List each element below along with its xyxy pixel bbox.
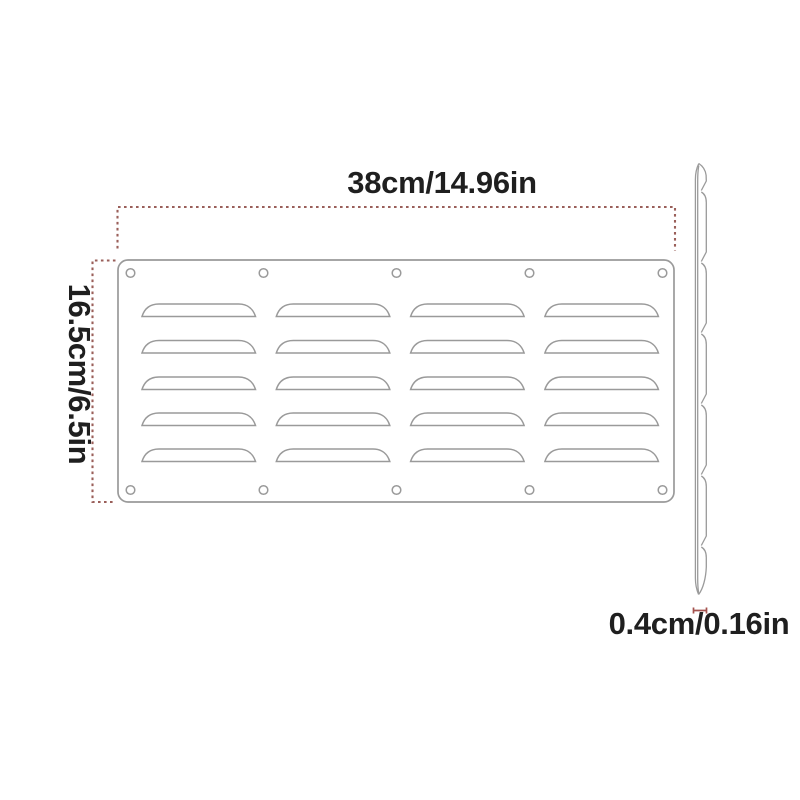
vent-diagram-svg — [0, 0, 800, 800]
screw-hole — [392, 486, 401, 495]
louver-slot — [411, 449, 524, 462]
louver-slot — [276, 377, 390, 390]
louver-slot — [142, 413, 256, 426]
side-profile-louver-shingles — [699, 164, 707, 595]
screw-hole — [259, 269, 268, 278]
height-dimension-label: 16.5cm/6.5in — [61, 284, 97, 465]
louver-slot — [142, 341, 256, 354]
louver-slot — [142, 449, 256, 462]
louver-slot — [276, 413, 390, 426]
product-dimension-diagram: 38cm/14.96in 16.5cm/6.5in 0.4cm/0.16in — [0, 0, 800, 800]
width-dimension-bracket — [118, 207, 676, 251]
vent-front-view — [118, 260, 674, 502]
screw-hole — [525, 269, 534, 278]
screw-hole — [658, 486, 667, 495]
screw-hole — [126, 269, 135, 278]
louver-slot — [545, 304, 659, 317]
louver-slot — [411, 341, 524, 354]
louver-slot — [276, 449, 390, 462]
screw-hole — [392, 269, 401, 278]
louver-slot — [142, 377, 256, 390]
vent-side-view — [695, 164, 706, 595]
screw-hole — [658, 269, 667, 278]
louver-slot — [545, 377, 659, 390]
louver-slot — [545, 341, 659, 354]
thickness-dimension-label: 0.4cm/0.16in — [609, 606, 790, 642]
louver-slot — [142, 304, 256, 317]
screw-hole — [525, 486, 534, 495]
side-profile-inner-edge — [698, 166, 699, 594]
louver-slot — [276, 304, 390, 317]
louver-slot — [411, 304, 524, 317]
louver-slot — [411, 377, 524, 390]
screw-hole — [259, 486, 268, 495]
louver-slot — [276, 341, 390, 354]
width-dimension-label: 38cm/14.96in — [347, 165, 536, 201]
louver-slot — [545, 449, 659, 462]
louver-slot — [545, 413, 659, 426]
louver-slot — [411, 413, 524, 426]
screw-hole — [126, 486, 135, 495]
